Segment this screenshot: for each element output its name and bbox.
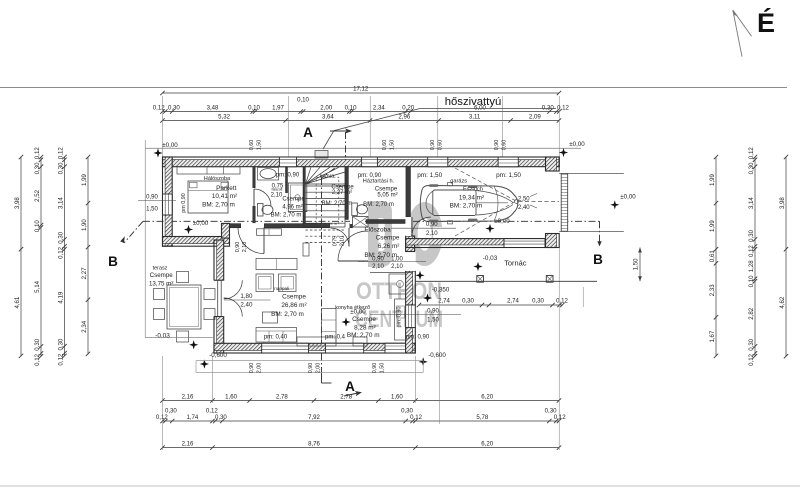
svg-text:4,61: 4,61 (14, 296, 21, 308)
svg-text:0,30: 0,30 (58, 231, 65, 243)
svg-text:2,10: 2,10 (271, 193, 283, 199)
svg-text:2,10: 2,10 (426, 231, 438, 237)
svg-text:garázs: garázs (450, 178, 467, 184)
svg-text:pm: 0,90: pm: 0,90 (276, 173, 300, 179)
svg-text:Hálószoba: Hálószoba (204, 176, 231, 182)
svg-text:A: A (345, 379, 355, 394)
svg-text:4,96 m²: 4,96 m² (282, 205, 302, 211)
svg-text:1,99: 1,99 (81, 173, 88, 185)
svg-text:-0,600: -0,600 (428, 352, 446, 359)
svg-text:2,10: 2,10 (372, 264, 384, 270)
svg-text:6,20: 6,20 (481, 440, 493, 447)
svg-text:2,74: 2,74 (507, 297, 519, 304)
svg-text:0,12: 0,12 (58, 147, 65, 159)
svg-text:1,50: 1,50 (633, 258, 640, 270)
svg-text:0,30: 0,30 (542, 104, 554, 111)
svg-text:0,12: 0,12 (748, 245, 755, 257)
svg-text:BM: 2,70 m: BM: 2,70 m (363, 202, 394, 208)
svg-text:2,78: 2,78 (276, 393, 288, 400)
svg-text:0,61: 0,61 (709, 250, 716, 262)
svg-text:0,12: 0,12 (557, 104, 569, 111)
svg-text:0,12: 0,12 (58, 246, 65, 258)
svg-text:1,97: 1,97 (272, 104, 284, 111)
svg-text:13,75 m²: 13,75 m² (149, 281, 173, 288)
svg-text:0,12: 0,12 (156, 414, 168, 421)
svg-text:0,60: 0,60 (502, 140, 508, 151)
svg-text:2,16: 2,16 (182, 440, 194, 447)
svg-text:0,90: 0,90 (494, 140, 500, 151)
svg-text:0,30: 0,30 (34, 162, 41, 174)
svg-text:2,09: 2,09 (529, 113, 541, 120)
svg-text:B: B (108, 254, 118, 269)
svg-text:pm: 1,50: pm: 1,50 (417, 172, 442, 179)
svg-text:0,30: 0,30 (58, 338, 65, 350)
svg-text:BM: 2,70 m: BM: 2,70 m (347, 332, 380, 339)
svg-text:0,30: 0,30 (532, 297, 544, 304)
svg-text:hőszivattyú: hőszivattyú (445, 96, 502, 108)
svg-text:0,30: 0,30 (748, 338, 755, 350)
svg-text:1,99: 1,99 (709, 173, 716, 185)
svg-text:0,12: 0,12 (410, 414, 422, 421)
svg-text:3,14: 3,14 (748, 197, 755, 209)
svg-text:0,90: 0,90 (430, 140, 436, 151)
svg-text:BM: 2,70 m: BM: 2,70 m (450, 202, 483, 209)
svg-text:nappali: nappali (274, 286, 289, 291)
svg-text:Esztrich: Esztrich (463, 186, 483, 192)
svg-text:±0,00: ±0,00 (162, 142, 178, 149)
svg-text:pm: 1,50: pm: 1,50 (496, 172, 521, 179)
svg-text:1,90: 1,90 (81, 219, 88, 231)
svg-text:3,64: 3,64 (322, 113, 334, 120)
svg-text:0,12: 0,12 (554, 414, 566, 421)
svg-text:2,27: 2,27 (81, 267, 88, 279)
svg-text:Csempe: Csempe (376, 235, 400, 242)
svg-text:0,12: 0,12 (58, 353, 65, 365)
svg-text:2,00: 2,00 (257, 363, 263, 374)
svg-text:0,10: 0,10 (345, 104, 357, 111)
svg-text:0,90: 0,90 (249, 363, 255, 374)
svg-text:17,12: 17,12 (353, 86, 369, 93)
svg-text:2,10: 2,10 (242, 242, 248, 253)
svg-text:pm: 0,90: pm: 0,90 (397, 307, 403, 328)
svg-text:1,50: 1,50 (257, 140, 263, 151)
svg-text:0,30: 0,30 (168, 104, 180, 111)
svg-text:8,28 m²: 8,28 m² (354, 325, 376, 332)
svg-text:1,74: 1,74 (186, 414, 198, 421)
svg-text:0,12: 0,12 (556, 297, 568, 304)
svg-text:5,78: 5,78 (476, 414, 488, 421)
svg-text:0,30: 0,30 (58, 162, 65, 174)
svg-text:Csempe: Csempe (282, 197, 305, 203)
svg-text:±0,00: ±0,00 (569, 141, 585, 148)
svg-text:19,34 m²: 19,34 m² (459, 194, 484, 201)
svg-text:Csempe: Csempe (150, 272, 174, 279)
svg-text:0,12: 0,12 (34, 353, 41, 365)
svg-text:0,30: 0,30 (748, 162, 755, 174)
svg-text:0,90: 0,90 (427, 308, 439, 314)
svg-text:Háztartási h.: Háztartási h. (363, 179, 395, 185)
svg-text:6,26 m²: 6,26 m² (378, 243, 400, 250)
svg-text:Parkett: Parkett (216, 185, 236, 192)
svg-text:terasz: terasz (153, 266, 168, 272)
svg-text:5,05 m²: 5,05 m² (377, 193, 397, 199)
svg-text:É: É (757, 7, 775, 38)
svg-text:konyha étkező: konyha étkező (335, 305, 370, 311)
svg-text:1,67: 1,67 (709, 330, 716, 342)
svg-text:6,20: 6,20 (481, 393, 493, 400)
svg-text:3,98: 3,98 (779, 197, 786, 209)
svg-text:1,60: 1,60 (225, 393, 237, 400)
svg-text:8,76: 8,76 (308, 440, 320, 447)
svg-text:0,10: 0,10 (248, 104, 260, 111)
svg-text:2,52: 2,52 (34, 189, 41, 201)
svg-text:pm 0,90: pm 0,90 (181, 193, 187, 212)
svg-text:2,96: 2,96 (398, 113, 410, 120)
svg-text:kamra: kamra (320, 174, 335, 180)
svg-text:pm: 0,4: pm: 0,4 (325, 335, 346, 341)
svg-text:3,11: 3,11 (469, 113, 481, 120)
svg-text:10,41 m²: 10,41 m² (212, 193, 237, 200)
svg-text:0,90: 0,90 (426, 222, 438, 228)
svg-text:0,90: 0,90 (235, 242, 241, 253)
svg-text:0,12: 0,12 (34, 147, 41, 159)
svg-text:0,30: 0,30 (165, 408, 177, 415)
svg-text:2,40: 2,40 (240, 301, 253, 308)
svg-text:1,28: 1,28 (748, 260, 755, 272)
svg-text:0,10: 0,10 (34, 220, 41, 232)
svg-text:2,74: 2,74 (438, 297, 450, 304)
svg-text:0,12: 0,12 (748, 147, 755, 159)
svg-text:-0,03: -0,03 (483, 255, 498, 262)
svg-text:3,98: 3,98 (14, 197, 21, 209)
svg-text:1,50: 1,50 (146, 207, 158, 213)
svg-text:2,10: 2,10 (391, 264, 403, 270)
svg-text:BM: 2,70 m: BM: 2,70 m (271, 311, 304, 318)
svg-text:4,62: 4,62 (779, 296, 786, 308)
svg-text:falazott: falazott (272, 188, 283, 192)
svg-text:Csempe: Csempe (352, 316, 376, 323)
svg-text:0,10: 0,10 (297, 97, 309, 104)
svg-text:4,19: 4,19 (58, 291, 65, 303)
svg-text:1,60: 1,60 (391, 393, 403, 400)
svg-text:Tornác: Tornác (504, 258, 526, 267)
svg-text:A: A (303, 125, 313, 140)
svg-text:26,86 m²: 26,86 m² (281, 302, 306, 309)
svg-text:0,30: 0,30 (215, 414, 227, 421)
svg-text:2,10: 2,10 (340, 236, 346, 246)
svg-text:2,50: 2,50 (518, 197, 530, 203)
svg-text:0,60: 0,60 (438, 140, 444, 151)
svg-text:0,75: 0,75 (333, 236, 339, 246)
svg-text:2,34: 2,34 (81, 320, 88, 332)
svg-text:2,27 m²: 2,27 m² (332, 190, 352, 196)
svg-text:pm: 0,90: pm: 0,90 (406, 335, 430, 341)
svg-text:3,48: 3,48 (207, 104, 219, 111)
svg-text:2,00: 2,00 (320, 104, 332, 111)
svg-text:1,50: 1,50 (427, 317, 439, 323)
svg-text:5,32: 5,32 (218, 113, 230, 120)
svg-text:0,30: 0,30 (34, 338, 41, 350)
svg-text:0,90: 0,90 (372, 363, 378, 374)
svg-text:BM: 2,70 m: BM: 2,70 m (322, 201, 353, 207)
svg-text:0,30: 0,30 (748, 229, 755, 241)
svg-text:0,90: 0,90 (308, 363, 314, 374)
svg-text:OTTHON: OTTHON (356, 278, 442, 305)
svg-text:2,16: 2,16 (182, 393, 194, 400)
svg-text:1,80: 1,80 (240, 293, 253, 300)
svg-text:Csempe: Csempe (282, 294, 306, 301)
svg-text:2,82: 2,82 (748, 307, 755, 319)
svg-text:±0,00: ±0,00 (620, 194, 636, 201)
svg-text:2,40: 2,40 (518, 205, 530, 211)
svg-text:1,50: 1,50 (380, 363, 386, 374)
svg-text:0,12: 0,12 (748, 353, 755, 365)
svg-text:0,10: 0,10 (748, 275, 755, 287)
svg-text:Előszoba: Előszoba (364, 227, 391, 234)
svg-text:2,33: 2,33 (709, 284, 716, 296)
svg-text:pm: 0,40: pm: 0,40 (264, 335, 288, 341)
svg-text:0,90: 0,90 (146, 195, 158, 201)
svg-text:B: B (593, 252, 603, 267)
svg-text:2,00: 2,00 (316, 363, 322, 374)
svg-text:0,60: 0,60 (382, 140, 388, 151)
svg-text:1,99: 1,99 (709, 220, 716, 232)
svg-text:BM: 2,70 m: BM: 2,70 m (271, 213, 302, 219)
svg-text:2,34: 2,34 (373, 104, 385, 111)
svg-text:0,12: 0,12 (153, 104, 165, 111)
svg-text:BM: 2,70 m: BM: 2,70 m (202, 201, 235, 208)
svg-text:1,50: 1,50 (390, 140, 396, 151)
svg-text:3,14: 3,14 (58, 197, 65, 209)
svg-text:-0,350: -0,350 (432, 287, 450, 294)
svg-text:-0,03: -0,03 (155, 333, 170, 340)
svg-text:0,60: 0,60 (249, 140, 255, 151)
svg-text:0,30: 0,30 (462, 297, 474, 304)
svg-text:5,14: 5,14 (34, 280, 41, 292)
svg-text:7,92: 7,92 (308, 414, 320, 421)
